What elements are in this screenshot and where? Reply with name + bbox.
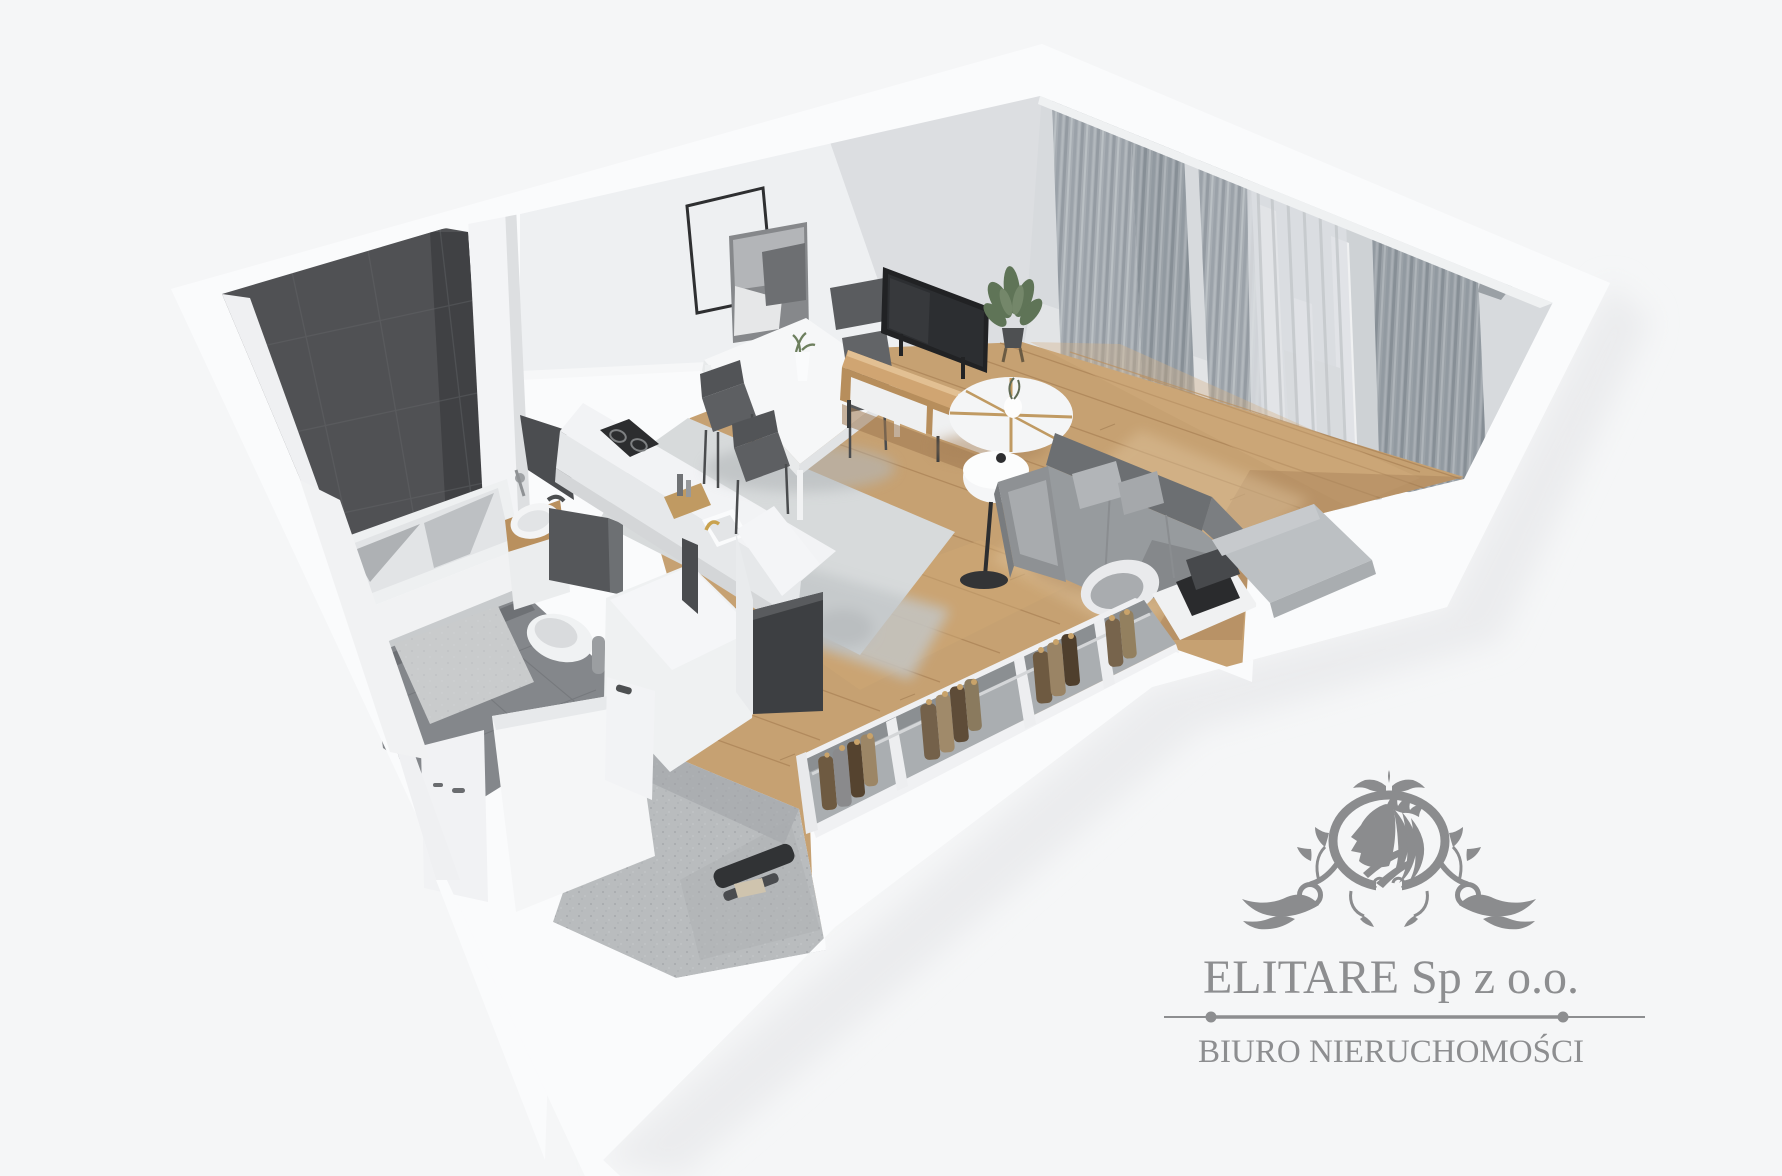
svg-text:ELITARE Sp z o.o.: ELITARE Sp z o.o.: [1203, 951, 1579, 1004]
svg-text:BIURO NIERUCHOMOŚCI: BIURO NIERUCHOMOŚCI: [1198, 1032, 1584, 1070]
